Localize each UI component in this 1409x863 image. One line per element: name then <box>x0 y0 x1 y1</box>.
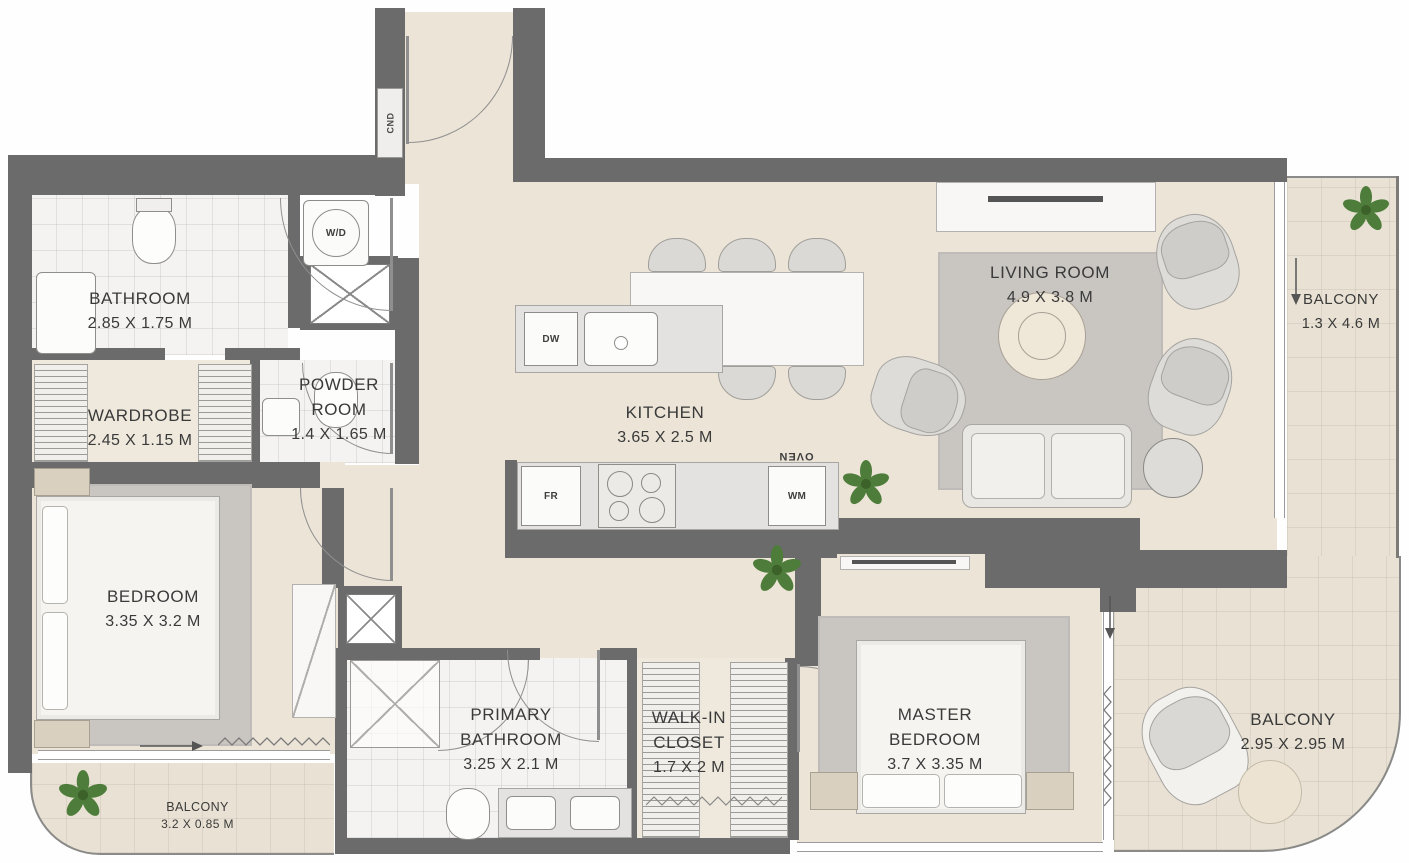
oven-label: OVEN <box>760 446 832 462</box>
walk-in-closet-label: WALK-IN CLOSET 1.7 X 2 M <box>630 705 748 780</box>
wall-bathroom-bottom-right <box>225 348 300 360</box>
room-name: POWDER ROOM <box>276 372 402 422</box>
bathroom-label: BATHROOM 2.85 X 1.75 M <box>55 286 225 336</box>
master-nightstand <box>810 772 858 810</box>
room-name: LIVING ROOM <box>955 260 1145 285</box>
tv-console <box>936 182 1156 232</box>
fridge: FR <box>521 466 581 526</box>
washer-dryer-unit: W/D <box>303 200 369 266</box>
room-name: KITCHEN <box>580 400 750 425</box>
vanity-sink <box>506 796 556 830</box>
plant-icon <box>752 545 802 595</box>
arrow-down-icon <box>1104 596 1116 640</box>
balcony-right-rail <box>1396 176 1399 558</box>
room-dims: 3.25 X 2.1 M <box>425 752 597 777</box>
wall-living-master-divider <box>795 518 1140 554</box>
plant-icon <box>842 460 890 508</box>
wall-entry-right-pillar <box>513 8 545 182</box>
bedroom-mirror <box>292 584 336 718</box>
burner <box>607 471 633 497</box>
room-dims: 1.4 X 1.65 M <box>276 422 402 447</box>
dishwasher-label: DW <box>542 334 559 345</box>
plant-icon <box>58 770 108 820</box>
room-dims: 2.95 X 2.95 M <box>1198 732 1388 757</box>
clothes-squiggle <box>646 794 782 808</box>
balcony-bottom-right-label: BALCONY 2.95 X 2.95 M <box>1198 707 1388 757</box>
curtain-squiggle <box>218 736 330 748</box>
side-table <box>1143 438 1203 498</box>
room-dims: 3.35 X 3.2 M <box>58 609 248 634</box>
ottoman-pouf <box>1238 760 1302 824</box>
master-bedroom-label: MASTER BEDROOM 3.7 X 3.35 M <box>855 702 1015 777</box>
washer-dryer-label: W/D <box>326 228 346 239</box>
condenser-unit: CND <box>377 88 403 158</box>
wall-bottom-outer <box>335 838 790 854</box>
wardrobe-label: WARDROBE 2.45 X 1.15 M <box>30 403 250 453</box>
living-room-label: LIVING ROOM 4.9 X 3.8 M <box>955 260 1145 310</box>
wall-top-left <box>8 155 378 195</box>
room-name: MASTER BEDROOM <box>855 702 1015 752</box>
wall-kitchen-counter-left <box>505 460 517 558</box>
room-dims: 1.3 X 4.6 M <box>1280 312 1402 337</box>
cooktop <box>598 464 676 528</box>
master-pillow <box>862 774 940 808</box>
wall-balcony-top-band <box>985 550 1287 588</box>
condenser-label: CND <box>385 113 395 134</box>
room-dims: 2.45 X 1.15 M <box>30 428 250 453</box>
bedroom-label: BEDROOM 3.35 X 3.2 M <box>58 584 248 634</box>
room-name: PRIMARY BATHROOM <box>425 702 597 752</box>
arrow-right-icon <box>140 740 204 752</box>
bathroom-toilet-tank <box>136 198 172 212</box>
powder-room-label: POWDER ROOM 1.4 X 1.65 M <box>276 372 402 447</box>
kitchen-sink-drain <box>614 336 628 350</box>
kitchen-label: KITCHEN 3.65 X 2.5 M <box>580 400 750 450</box>
burner <box>641 473 661 493</box>
room-dims: 1.7 X 2 M <box>630 755 748 780</box>
room-name: BALCONY <box>1280 287 1402 312</box>
burner <box>639 497 665 523</box>
primary-toilet <box>446 788 490 840</box>
floor-plan: W/D CND DW FR WM OVEN <box>0 0 1409 863</box>
room-name: BEDROOM <box>58 584 248 609</box>
sofa-cushion <box>1051 433 1125 499</box>
sofa <box>962 424 1132 508</box>
room-dims: 4.9 X 3.8 M <box>955 285 1145 310</box>
room-name: BALCONY <box>1198 707 1388 732</box>
wall-top-right <box>545 158 1287 182</box>
room-dims: 2.85 X 1.75 M <box>55 311 225 336</box>
washing-machine-label: WM <box>788 491 806 502</box>
room-name: BATHROOM <box>55 286 225 311</box>
fridge-label: FR <box>544 491 558 502</box>
sofa-cushion <box>971 433 1045 499</box>
primary-bathroom-label: PRIMARY BATHROOM 3.25 X 2.1 M <box>425 702 597 777</box>
dishwasher: DW <box>524 312 578 366</box>
shaft2-crossed-box <box>346 594 396 644</box>
bedroom-nightstand <box>34 720 90 748</box>
washing-machine: WM <box>768 466 826 526</box>
bathroom-toilet <box>132 206 176 264</box>
wall-primary-bath-left <box>335 648 347 840</box>
window-living-balcony <box>1274 182 1285 518</box>
master-tv-icon <box>852 560 956 564</box>
room-name: WALK-IN CLOSET <box>630 705 748 755</box>
room-dims: 3.65 X 2.5 M <box>580 425 750 450</box>
plant-icon <box>1342 186 1390 234</box>
master-pillow <box>944 774 1022 808</box>
balcony-bottom-left-label: BALCONY 3.2 X 0.85 M <box>120 799 275 833</box>
corridor-lower-floor <box>340 555 800 660</box>
room-name: BALCONY <box>120 799 275 816</box>
vanity-sink <box>570 796 620 830</box>
tv-icon <box>988 196 1103 202</box>
balcony-right-label: BALCONY 1.3 X 4.6 M <box>1280 287 1402 337</box>
room-dims: 3.7 X 3.35 M <box>855 752 1015 777</box>
master-nightstand <box>1026 772 1074 810</box>
room-name: WARDROBE <box>30 403 250 428</box>
coffee-table-inner-ring <box>1018 312 1066 360</box>
window-master-bottom <box>797 842 1103 852</box>
curtain-squiggle <box>1102 686 1114 810</box>
room-dims: 3.2 X 0.85 M <box>120 816 275 833</box>
burner <box>609 501 629 521</box>
bedroom-nightstand <box>34 468 90 496</box>
